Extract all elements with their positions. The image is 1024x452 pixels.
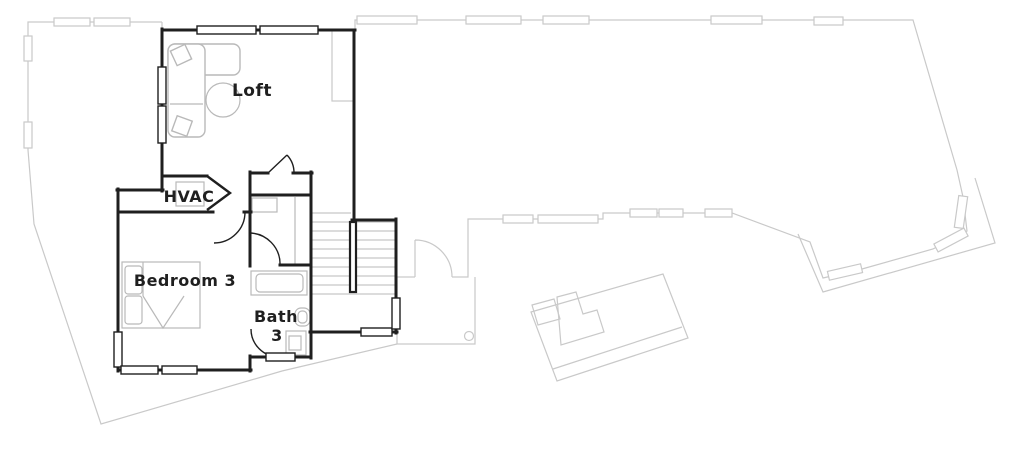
below-window — [24, 36, 32, 61]
loft-window — [260, 26, 318, 34]
loft-window — [197, 26, 256, 34]
bedroom-window — [121, 366, 158, 374]
bath3-label-line1: Bath — [254, 307, 298, 326]
bath3-label-line2: 3 — [271, 326, 283, 345]
hall-shelf — [252, 198, 277, 212]
toilet-seat — [289, 336, 301, 350]
below-window — [503, 215, 533, 223]
landing-window — [392, 298, 400, 329]
below-entry-wall — [397, 277, 475, 344]
below-lower-structure-steps — [557, 292, 604, 345]
floor-plan-canvas: Loft HVAC Bedroom 3 Bath 3 — [0, 0, 1024, 452]
hvac-label: HVAC — [164, 187, 215, 206]
below-window — [54, 18, 90, 26]
bedroom3-label: Bedroom 3 — [134, 271, 236, 290]
loft-chase — [332, 31, 353, 101]
loft-closet-door — [268, 155, 294, 173]
staircase — [312, 213, 395, 294]
below-window — [466, 16, 521, 24]
below-window — [827, 264, 862, 280]
below-window — [24, 122, 32, 148]
below-window — [357, 16, 417, 24]
loft-label: Loft — [232, 81, 272, 101]
below-window — [94, 18, 130, 26]
furniture — [122, 31, 353, 355]
below-window — [538, 215, 598, 223]
hall-door-arc — [249, 233, 280, 265]
below-left-wing-wall — [28, 22, 397, 424]
below-lower-structure — [531, 274, 688, 381]
below-window — [630, 209, 657, 217]
stair-railing — [350, 222, 356, 292]
below-lower-structure-inner-line — [553, 327, 682, 369]
floor-plan-drawing: Loft HVAC Bedroom 3 Bath 3 — [0, 0, 1024, 452]
bath-window — [266, 353, 295, 361]
bath-vanity-counter — [256, 274, 303, 292]
below-window — [705, 209, 732, 217]
below-window — [543, 16, 589, 24]
landing-window — [361, 328, 392, 336]
bedroom-door-arc — [214, 212, 245, 243]
bedroom-window — [162, 366, 197, 374]
below-window — [659, 209, 683, 217]
below-right-wing-wall — [355, 20, 967, 278]
below-window — [711, 16, 762, 24]
below-window — [934, 228, 968, 252]
bed-pillow — [125, 296, 142, 324]
loft-window — [158, 106, 166, 143]
bedroom-window — [114, 332, 122, 367]
loft-window — [158, 67, 166, 104]
below-window — [814, 17, 843, 25]
bath-sink-bowl — [298, 311, 307, 323]
below-floor-drain — [465, 332, 474, 341]
below-lower-structure-notch — [532, 299, 560, 325]
below-entry-door-arc — [415, 240, 452, 277]
bed-blanket-fold — [143, 296, 184, 328]
